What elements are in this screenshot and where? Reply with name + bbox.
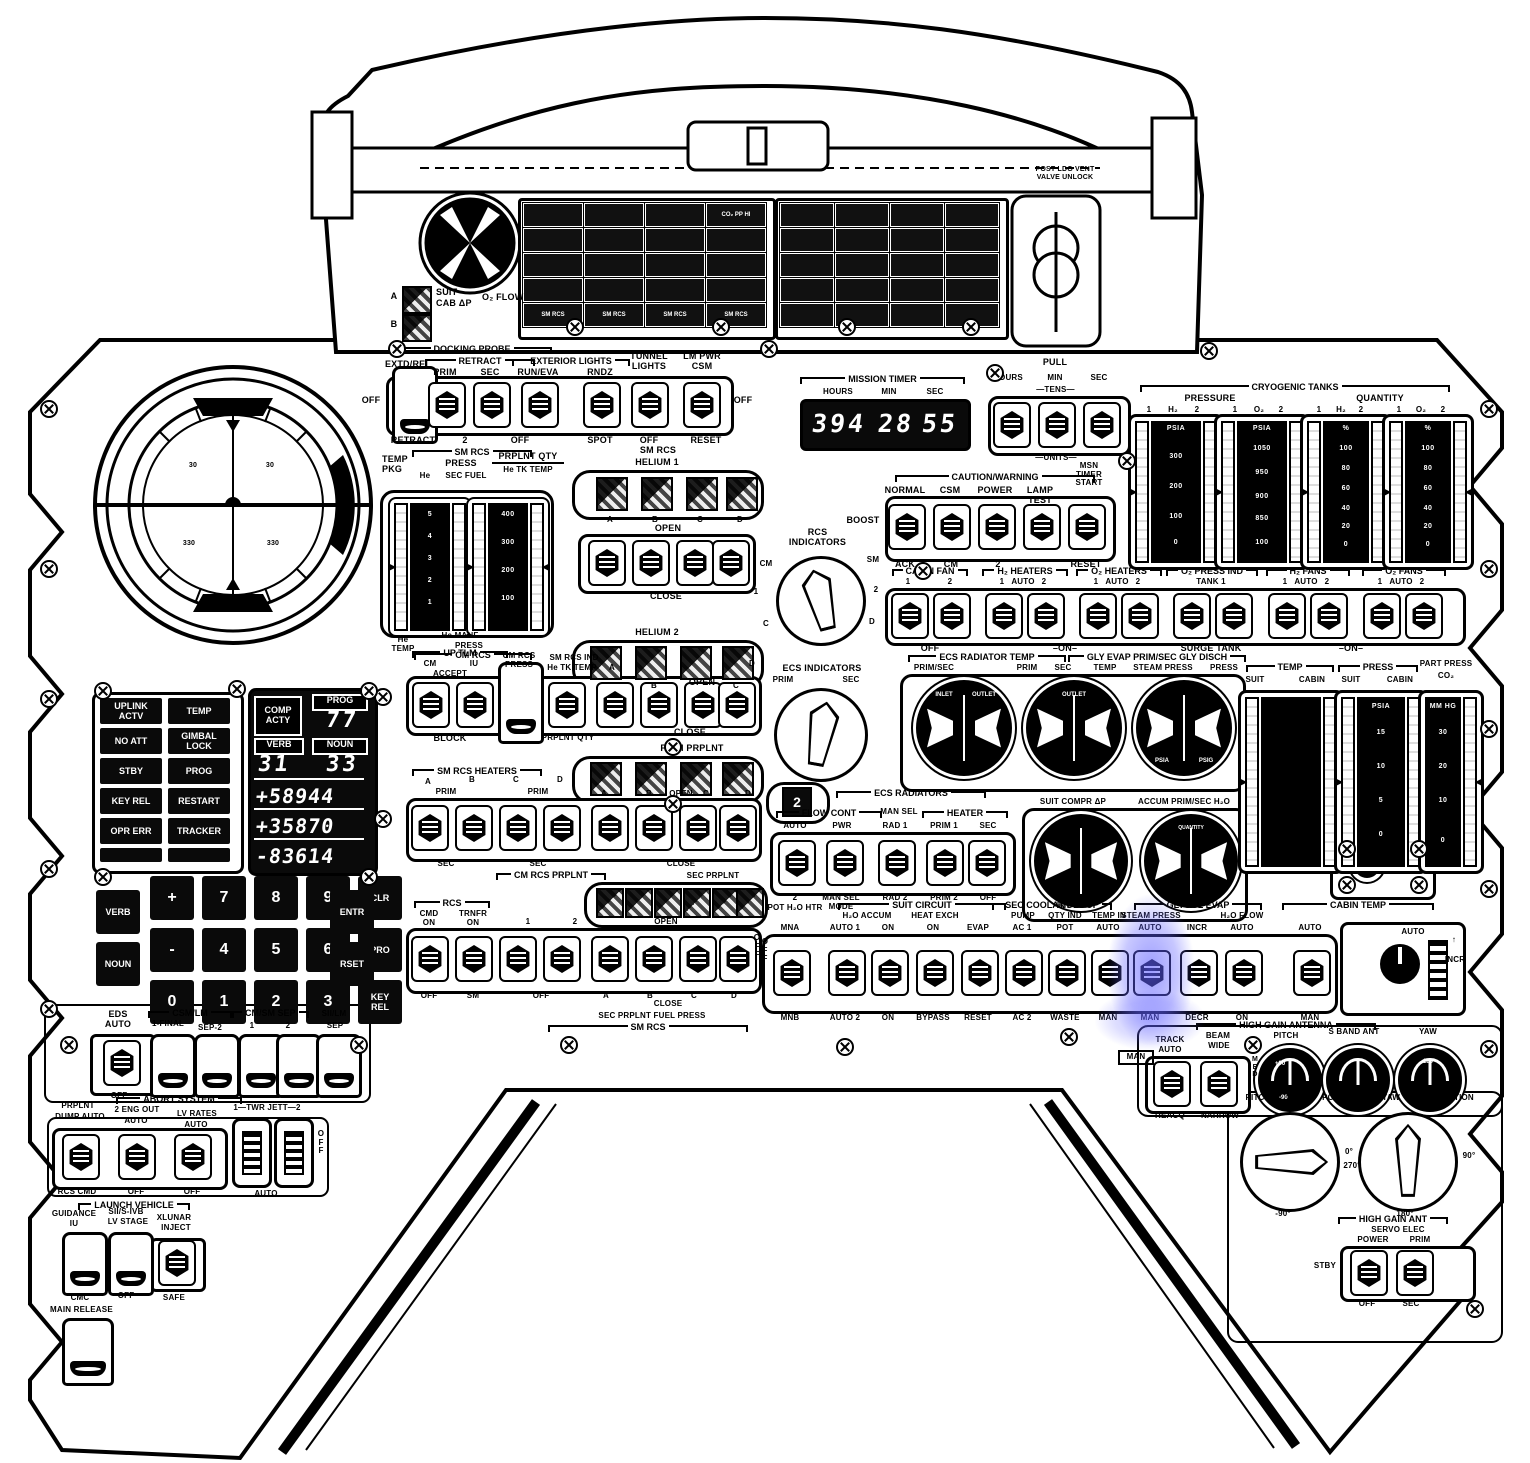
gly-evap-title: GLY EVAP PRIM/SEC GLY DISCH bbox=[1068, 652, 1246, 662]
key-entr[interactable]: ENTR bbox=[330, 890, 374, 934]
spot-bottom: SPOT bbox=[583, 436, 617, 446]
flow-cont-pwr-switch[interactable] bbox=[826, 840, 864, 886]
cryo-quantity: QUANTITY bbox=[1345, 394, 1415, 404]
helium1-b-switch[interactable] bbox=[632, 540, 670, 586]
register-2: +35870 bbox=[255, 814, 336, 838]
co2-label: CO₂ bbox=[1432, 672, 1460, 681]
hga-reacq: REACQ bbox=[1148, 1112, 1192, 1121]
screw bbox=[1480, 880, 1498, 898]
ab-off1: OFF bbox=[122, 1188, 150, 1197]
rcs-trnfr-switch[interactable] bbox=[455, 936, 493, 982]
eds-auto-switch[interactable] bbox=[103, 1040, 141, 1086]
csm-lm-sep2-guard[interactable] bbox=[194, 1034, 240, 1098]
sec-label: SEC bbox=[474, 368, 506, 378]
pointer-left: ► bbox=[1213, 487, 1226, 497]
h2-heater-2-switch[interactable] bbox=[1027, 593, 1065, 639]
rad-temp-prim-sec-gauge: OUTLET bbox=[1026, 680, 1122, 776]
yaw-position-dial[interactable] bbox=[1358, 1112, 1458, 1212]
gauge-outlet2: OUTLET bbox=[1030, 692, 1118, 698]
key-rset[interactable]: RSET bbox=[330, 942, 374, 986]
dsky-light-tracker: TRACKER bbox=[168, 818, 230, 844]
man-sel-rad-switch[interactable] bbox=[878, 840, 916, 886]
pos-c: C bbox=[760, 620, 772, 629]
press-title: PRESS bbox=[1338, 662, 1418, 672]
ab-lv: LV RATES bbox=[172, 1110, 222, 1119]
screw bbox=[962, 318, 980, 336]
h2o-flow: H₂O FLOW bbox=[1216, 912, 1268, 921]
sm-rcs-helium-title: SM RCS bbox=[630, 446, 686, 456]
prim-prplnt-b-switch[interactable] bbox=[635, 805, 673, 851]
verb-digits: 31 bbox=[256, 752, 292, 777]
heater-a-switch[interactable] bbox=[411, 805, 449, 851]
h2-heater-1-switch[interactable] bbox=[985, 593, 1023, 639]
o2-heater-1-switch[interactable] bbox=[1079, 593, 1117, 639]
cryo-col: H₂ bbox=[1164, 406, 1182, 415]
h2-fan-2-switch[interactable] bbox=[1310, 593, 1348, 639]
fdai-30-left: 30 bbox=[185, 462, 201, 470]
screw bbox=[374, 810, 392, 828]
rt-prim: PRIM bbox=[1012, 664, 1042, 673]
twr-jett-1-lever[interactable] bbox=[232, 1118, 272, 1188]
breaker-cell-smrcs: SM RCS bbox=[645, 303, 705, 327]
bt0: MNA bbox=[772, 924, 808, 933]
dsky-light-restart: RESTART bbox=[168, 788, 230, 814]
sub: 2 bbox=[1130, 578, 1146, 587]
temp-in-switch[interactable] bbox=[1091, 950, 1129, 996]
pot-h2o-htr: POT H₂O HTR bbox=[760, 904, 830, 913]
bt7: AUTO bbox=[1091, 924, 1125, 933]
two-eng-out-switch[interactable] bbox=[118, 1134, 156, 1180]
screw bbox=[228, 680, 246, 698]
h2o-accum-switch[interactable] bbox=[828, 950, 866, 996]
rcs-trnfr: TRNFR ON bbox=[456, 910, 490, 927]
sub: AUTO bbox=[1008, 578, 1038, 587]
key-keyrel[interactable]: KEY REL bbox=[358, 980, 402, 1024]
helium2-a-switch[interactable] bbox=[596, 682, 634, 728]
tunnel-lights-switch[interactable] bbox=[631, 382, 669, 428]
h-c: C bbox=[510, 776, 522, 785]
sub: 2 bbox=[1319, 578, 1335, 587]
cryo-col: 1 bbox=[1312, 406, 1326, 415]
cryo-col: 1 bbox=[1142, 406, 1156, 415]
glycol-evap-steam-press-switch[interactable] bbox=[1133, 950, 1171, 996]
twr-jett-2-lever[interactable] bbox=[274, 1118, 314, 1188]
screw bbox=[560, 1036, 578, 1054]
hga-yaw: YAW bbox=[1412, 1028, 1444, 1037]
hp-rb: B bbox=[643, 790, 655, 799]
suit-label: SUIT bbox=[436, 288, 470, 298]
breaker-cell bbox=[835, 253, 889, 277]
h-d: D bbox=[554, 776, 566, 785]
screw bbox=[664, 738, 682, 756]
he2-close: CLOSE bbox=[668, 728, 712, 738]
cabin-fan-2-switch[interactable] bbox=[933, 593, 971, 639]
cm-prplnt-tb-4 bbox=[683, 888, 711, 918]
h-prim1: PRIM bbox=[432, 788, 460, 797]
up-tlm-cm-switch[interactable] bbox=[412, 682, 450, 728]
pull-sec: SEC bbox=[1084, 374, 1114, 383]
tick: 200 bbox=[1151, 483, 1201, 490]
breaker-cell bbox=[890, 278, 944, 302]
flow-cont-title: FLOW CONT bbox=[776, 808, 882, 818]
sm-rcs-heaters-title: SM RCS HEATERS bbox=[412, 766, 542, 776]
fdai-330-left: 330 bbox=[178, 540, 200, 548]
helium2-c-switch[interactable] bbox=[684, 682, 722, 728]
pos-1: 1 bbox=[750, 588, 762, 597]
heater-sec-switch[interactable] bbox=[968, 840, 1006, 886]
evap-reset-switch[interactable] bbox=[961, 950, 999, 996]
o2-fan-2-switch[interactable] bbox=[1405, 593, 1443, 639]
cabin-temp-switch[interactable] bbox=[1293, 950, 1331, 996]
servo-off: OFF bbox=[1352, 1300, 1382, 1309]
cabin-temp-slider[interactable] bbox=[1428, 940, 1448, 1000]
cabin-temp-auto: AUTO bbox=[1396, 928, 1430, 937]
timer-hours-switch[interactable] bbox=[993, 402, 1031, 448]
tick: 850 bbox=[1237, 515, 1287, 522]
rcs-a-switch[interactable] bbox=[591, 936, 629, 982]
screw bbox=[986, 364, 1004, 382]
bb0: MNB bbox=[772, 1014, 808, 1023]
sm-rcs-ind-switch[interactable] bbox=[548, 682, 586, 728]
he-label: He bbox=[416, 472, 434, 481]
h-close: CLOSE bbox=[662, 860, 700, 869]
sii-sep: SEP bbox=[322, 1022, 348, 1031]
o2-fan-1-switch[interactable] bbox=[1363, 593, 1401, 639]
tick: 10 bbox=[1425, 797, 1461, 804]
heat-exch-switch[interactable] bbox=[916, 950, 954, 996]
pointer-left: ► bbox=[386, 562, 399, 572]
o2-press-ind-switch-1[interactable] bbox=[1173, 593, 1211, 639]
timer-sec-switch[interactable] bbox=[1083, 402, 1121, 448]
he1-a: A bbox=[604, 516, 616, 525]
rcs-open: OPEN bbox=[648, 918, 684, 927]
ab-auto1: AUTO bbox=[120, 1117, 152, 1126]
helium1-talkback-b bbox=[641, 477, 673, 511]
breaker-cell bbox=[523, 278, 583, 302]
cm-prplnt-tb-2 bbox=[625, 888, 653, 918]
o2-press-ind-title: O₂ PRESS IND bbox=[1166, 566, 1258, 576]
docking-off-right: OFF bbox=[730, 396, 756, 406]
rcs-c-switch[interactable] bbox=[679, 936, 717, 982]
flow-cont-auto-switch[interactable] bbox=[778, 840, 816, 886]
prim-prplnt-c-switch[interactable] bbox=[679, 805, 717, 851]
ab-off2: OFF bbox=[178, 1188, 206, 1197]
tick: % bbox=[1405, 425, 1451, 432]
servo-power-switch[interactable] bbox=[1350, 1250, 1388, 1296]
h2o-flow-switch[interactable] bbox=[1225, 950, 1263, 996]
helium1-talkback-c bbox=[686, 477, 718, 511]
lv-stage-guard[interactable] bbox=[108, 1232, 154, 1296]
fdai-attitude-indicator bbox=[95, 367, 371, 643]
he2-c: C bbox=[730, 682, 742, 691]
cabin-fan-1-switch[interactable] bbox=[891, 593, 929, 639]
pointer-left: ► bbox=[1299, 487, 1312, 497]
breaker-cell bbox=[945, 253, 999, 277]
gauge-outlet: OUTLET bbox=[940, 692, 1028, 698]
helium2-talkback-b bbox=[635, 646, 667, 680]
exterior-lights-title: EXTERIOR LIGHTS bbox=[512, 356, 630, 366]
main-release-label: MAIN RELEASE bbox=[50, 1306, 130, 1315]
main-release-guard[interactable] bbox=[62, 1318, 114, 1386]
caution-lamp-switch[interactable] bbox=[1023, 504, 1061, 550]
breaker-cell bbox=[945, 228, 999, 252]
pp-r270: 270° bbox=[1338, 1162, 1366, 1171]
tick: 20 bbox=[1425, 763, 1461, 770]
hp-rd: D bbox=[742, 790, 754, 799]
pos-sm: SM bbox=[862, 556, 884, 565]
h-b: B bbox=[466, 776, 478, 785]
tick: 900 bbox=[1237, 493, 1287, 500]
lamp-test-label: LAMP TEST bbox=[1014, 486, 1066, 505]
sub: AUTO bbox=[1386, 578, 1416, 587]
screw bbox=[40, 400, 58, 418]
key-plus[interactable]: + bbox=[150, 876, 194, 920]
bt11: AUTO bbox=[1293, 924, 1327, 933]
heater-d-switch[interactable] bbox=[543, 805, 581, 851]
off-bottom-1: OFF bbox=[505, 436, 535, 446]
tick: 100 bbox=[1237, 539, 1287, 546]
sep-2: SEP-2 bbox=[192, 1024, 228, 1033]
timer-digits-sec: 55 bbox=[920, 409, 960, 438]
dsky-light-prog: PROG bbox=[168, 758, 230, 784]
ecsind-sec: SEC bbox=[838, 676, 864, 685]
rcs-2: 2 bbox=[569, 918, 581, 927]
tick: 100 bbox=[1323, 445, 1369, 452]
screw bbox=[914, 562, 932, 580]
rcs-2-switch[interactable] bbox=[543, 936, 581, 982]
cryo-col: 2 bbox=[1190, 406, 1204, 415]
h-a: A bbox=[422, 778, 434, 787]
eds-auto-label: EDS AUTO bbox=[100, 1010, 136, 1029]
cabin-temp-arrow: ↑ bbox=[1448, 936, 1460, 945]
o2-heater-2-switch[interactable] bbox=[1121, 593, 1159, 639]
servo-sec: SEC bbox=[1396, 1300, 1426, 1309]
hga-wide: WIDE bbox=[1202, 1042, 1236, 1051]
two-bottom: 2 bbox=[455, 436, 475, 446]
breaker-cell bbox=[945, 278, 999, 302]
heat-exch: HEAT EXCH bbox=[904, 912, 966, 921]
gly-press: PRESS bbox=[1204, 664, 1244, 673]
screw bbox=[838, 318, 856, 336]
tick: 200 bbox=[488, 567, 528, 574]
breaker-cell bbox=[645, 253, 705, 277]
sub: AUTO bbox=[1291, 578, 1321, 587]
co2-part-press-gauge: MM HG 30 20 10 0 ◄ bbox=[1418, 690, 1484, 874]
docking-prim-switch[interactable] bbox=[428, 382, 466, 428]
key-verb[interactable]: VERB bbox=[96, 890, 140, 934]
prim-label: PRIM bbox=[428, 368, 462, 378]
timer-digits-min: 28 bbox=[876, 409, 916, 438]
pitch-position-dial[interactable] bbox=[1240, 1112, 1340, 1212]
helium1-c-switch[interactable] bbox=[676, 540, 714, 586]
helium2-talkback-c bbox=[680, 646, 712, 680]
rad-temp-primsec-gauge: INLET OUTLET bbox=[916, 680, 1012, 776]
coolant-pump-switch[interactable] bbox=[1005, 950, 1043, 996]
tick: 40 bbox=[1323, 505, 1369, 512]
he1-c: C bbox=[694, 516, 706, 525]
prim-prplnt-d-switch[interactable] bbox=[719, 805, 757, 851]
cm-rcs-press-label: CM RCS PRESS bbox=[496, 652, 542, 669]
servo-stby: STBY bbox=[1310, 1262, 1340, 1271]
accum-quantity-gauge: QUANTITY bbox=[1144, 814, 1238, 908]
cabin-temp-knob[interactable] bbox=[1380, 944, 1420, 984]
pointer-left: ► bbox=[1127, 487, 1140, 497]
helium1-a-switch[interactable] bbox=[588, 540, 626, 586]
gly-evap-steam-gauge: PSIA PSIG bbox=[1136, 680, 1232, 776]
sec-fuel-label: SEC FUEL bbox=[440, 472, 492, 481]
ecs-indicators-title: ECS INDICATORS bbox=[772, 664, 872, 674]
caution-normal-switch[interactable] bbox=[888, 504, 926, 550]
track-switch[interactable] bbox=[1153, 1061, 1191, 1107]
rcs-b-switch[interactable] bbox=[635, 936, 673, 982]
xlunar-switch[interactable] bbox=[158, 1240, 196, 1286]
screw bbox=[836, 1038, 854, 1056]
post-ldg-label: POST LDG VENT VALVE UNLOCK bbox=[1020, 166, 1110, 181]
heater-prim-switch[interactable] bbox=[926, 840, 964, 886]
screw bbox=[1338, 840, 1356, 858]
pointer-left: ► bbox=[464, 562, 477, 572]
heater-c-switch[interactable] bbox=[499, 805, 537, 851]
temp-title: TEMP bbox=[1246, 662, 1334, 672]
er-rad1: RAD 1 bbox=[878, 822, 912, 831]
sep-final: 1-FINAL bbox=[148, 1020, 188, 1029]
dsky-light-gimbal: GIMBAL LOCK bbox=[168, 728, 230, 754]
tick: 5 bbox=[1357, 797, 1405, 804]
tick: 0 bbox=[1357, 831, 1405, 838]
screw bbox=[94, 868, 112, 886]
glycol-evap-incr-decr-switch[interactable] bbox=[1180, 950, 1218, 996]
cryo-pressure: PRESSURE bbox=[1175, 394, 1245, 404]
prim-prplnt-a-switch[interactable] bbox=[591, 805, 629, 851]
sii-lm: SII/LM bbox=[312, 1010, 356, 1019]
sub: 1 bbox=[900, 578, 916, 587]
suit-compr-gauge bbox=[1034, 814, 1128, 908]
breaker-cell bbox=[890, 253, 944, 277]
timer-min-switch[interactable] bbox=[1038, 402, 1076, 448]
o2-press-ind-switch-2[interactable] bbox=[1215, 593, 1253, 639]
h-sec1: SEC bbox=[432, 860, 460, 869]
yp-pos: POSITION bbox=[1428, 1094, 1480, 1103]
key-4[interactable]: 4 bbox=[202, 928, 246, 972]
gauge-quantity: QUANTITY bbox=[1148, 825, 1234, 831]
servo-prim-switch[interactable] bbox=[1396, 1250, 1434, 1296]
rcs-fuel: SEC PRPLNT FUEL PRESS bbox=[582, 1012, 722, 1021]
key-noun[interactable]: NOUN bbox=[96, 942, 140, 986]
tick: 0 bbox=[1425, 837, 1461, 844]
sep-one: 1 bbox=[246, 1022, 258, 1031]
pp-pos: POSITION bbox=[1316, 1094, 1368, 1103]
suit-circuit-on-switch[interactable] bbox=[871, 950, 909, 996]
ab-auto2: AUTO bbox=[180, 1121, 212, 1130]
screw bbox=[1480, 560, 1498, 578]
bb4: RESET bbox=[959, 1014, 997, 1023]
tick: 30 bbox=[1425, 729, 1461, 736]
breaker-cell bbox=[523, 203, 583, 227]
msn-timer-switch[interactable] bbox=[1068, 504, 1106, 550]
screw bbox=[1410, 876, 1428, 894]
gauge-psig: PSIG bbox=[1162, 758, 1250, 764]
dsky-light-keyrel: KEY REL bbox=[100, 788, 162, 814]
cross-gauge bbox=[420, 193, 520, 293]
rcs-close: CLOSE bbox=[648, 1000, 688, 1009]
cryo-o2-pressure-gauge: PSIA 1050 950 900 850 100 ► ◄ bbox=[1214, 414, 1310, 570]
prplnt-qty-gauge: 400 300 200 100 ► ◄ bbox=[466, 497, 550, 637]
caution-power-switch[interactable] bbox=[978, 504, 1016, 550]
bt2: ON bbox=[876, 924, 900, 933]
press-label: PRESS bbox=[438, 459, 484, 469]
ecs-indicators-rotary[interactable] bbox=[774, 688, 868, 782]
t-cabin: CABIN bbox=[1294, 676, 1330, 685]
he2-open: OPEN bbox=[682, 678, 722, 688]
rcs-1-switch[interactable] bbox=[499, 936, 537, 982]
pp-bm: -90° bbox=[1268, 1210, 1298, 1219]
breaker-cell bbox=[780, 253, 834, 277]
tens-label: —TENS— bbox=[1028, 386, 1083, 395]
key-5[interactable]: 5 bbox=[254, 928, 298, 972]
prplnt-dump-switch[interactable] bbox=[62, 1134, 100, 1180]
pot-h2o-htr-switch[interactable] bbox=[773, 950, 811, 996]
csm-lm-title: CSM/LM bbox=[148, 1008, 232, 1018]
hga-sband: S BAND ANT bbox=[1322, 1028, 1386, 1037]
he1-close: CLOSE bbox=[644, 592, 688, 602]
tick: 3 bbox=[410, 555, 450, 562]
helium1-d-switch[interactable] bbox=[712, 540, 750, 586]
beam-switch[interactable] bbox=[1200, 1061, 1238, 1107]
key-8[interactable]: 8 bbox=[254, 876, 298, 920]
breaker-cell-smrcs: SM RCS bbox=[584, 303, 644, 327]
rndz-switch[interactable] bbox=[583, 382, 621, 428]
cm-rcs-press-guard[interactable] bbox=[498, 662, 544, 744]
rcs-cmd-switch[interactable] bbox=[411, 936, 449, 982]
caution-csm-switch[interactable] bbox=[933, 504, 971, 550]
lm-pwr-switch[interactable] bbox=[683, 382, 721, 428]
breaker-cell bbox=[706, 253, 766, 277]
boost-label: BOOST bbox=[842, 516, 884, 526]
rcs-indicators-rotary[interactable] bbox=[776, 556, 866, 646]
h2-fan-1-switch[interactable] bbox=[1268, 593, 1306, 639]
h2o-qty-ind-switch[interactable] bbox=[1048, 950, 1086, 996]
key-7[interactable]: 7 bbox=[202, 876, 246, 920]
bb6: WASTE bbox=[1047, 1014, 1083, 1023]
tick: 300 bbox=[488, 539, 528, 546]
twr-off: O F F bbox=[316, 1130, 326, 1156]
guidance-guard[interactable] bbox=[62, 1232, 108, 1296]
prplnt-qty-label: PRPLNT QTY bbox=[492, 452, 564, 464]
up-tlm-iu-switch[interactable] bbox=[456, 682, 494, 728]
docking-sec-switch[interactable] bbox=[473, 382, 511, 428]
key-minus[interactable]: - bbox=[150, 928, 194, 972]
suit-circuit-title: SUIT CIRCUIT bbox=[838, 900, 1006, 910]
run-eva-switch[interactable] bbox=[521, 382, 559, 428]
dsky-light-noatt: NO ATT bbox=[100, 728, 162, 754]
tick: PSIA bbox=[1357, 703, 1405, 710]
cryo-col: O₂ bbox=[1250, 406, 1268, 415]
heater-b-switch[interactable] bbox=[455, 805, 493, 851]
lv-cmc: CMC bbox=[66, 1294, 94, 1303]
csm-lm-final-guard[interactable] bbox=[150, 1034, 196, 1098]
tick: 1050 bbox=[1237, 445, 1287, 452]
cryo-title: CRYOGENIC TANKS bbox=[1140, 382, 1450, 392]
pp-r0: 0° bbox=[1338, 1148, 1360, 1157]
lv-rates-switch[interactable] bbox=[174, 1134, 212, 1180]
tick: 2 bbox=[410, 577, 450, 584]
hga-man: MAN bbox=[1118, 1050, 1154, 1065]
tick: 10 bbox=[1357, 763, 1405, 770]
screw bbox=[664, 795, 682, 813]
sub: 2 bbox=[1036, 578, 1052, 587]
rcs-1: 1 bbox=[522, 918, 534, 927]
bt6: POT bbox=[1051, 924, 1079, 933]
